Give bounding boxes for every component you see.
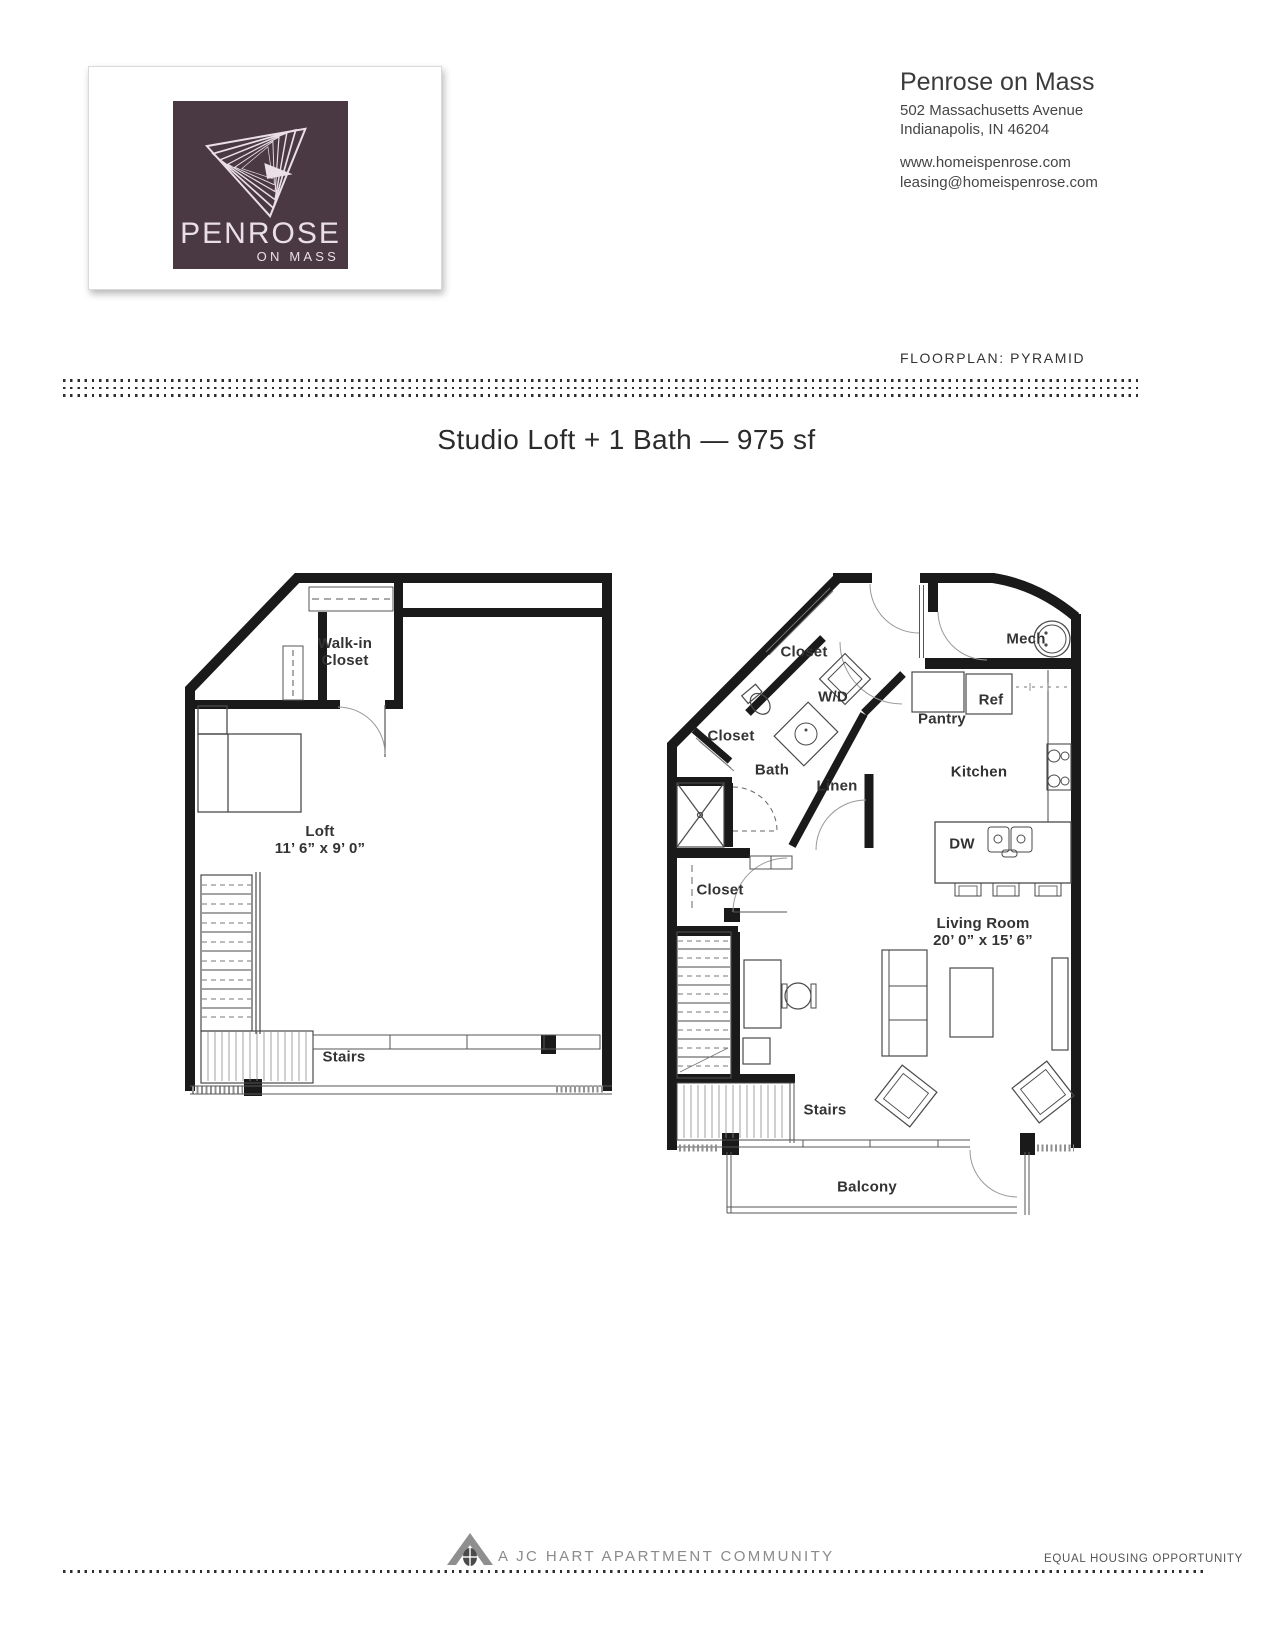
label-mech: Mech [1006,631,1045,648]
dotted-divider-top [63,379,1140,402]
logo-brand-text: PENROSE [173,217,348,251]
label-closet-lower: Closet [696,882,743,899]
loft-level-plan [150,530,620,1110]
label-ref: Ref [979,692,1004,709]
label-bath: Bath [755,762,789,779]
jchart-house-icon [444,1527,496,1569]
label-closet-entry: Closet [780,644,827,661]
website-link[interactable]: www.homeispenrose.com [900,153,1098,173]
penrose-logo: PENROSE ON MASS [173,101,348,269]
community-text: A JC HART APARTMENT COMMUNITY [498,1548,835,1565]
address-line2: Indianapolis, IN 46204 [900,120,1083,139]
label-stairs-main: Stairs [804,1102,847,1119]
label-balcony: Balcony [837,1179,897,1196]
logo-card: PENROSE ON MASS [88,66,442,290]
page-title: Studio Loft + 1 Bath — 975 sf [0,424,1253,456]
property-name: Penrose on Mass [900,68,1095,97]
label-walk-in-closet: Walk-in Closet [318,635,372,669]
property-contact: www.homeispenrose.com leasing@homeispenr… [900,153,1098,193]
property-address: 502 Massachusetts Avenue Indianapolis, I… [900,101,1083,139]
label-living-room: Living Room 20’ 0” x 15’ 6” [933,915,1033,949]
dotted-divider-bottom [63,1570,1205,1578]
equal-housing-text: EQUAL HOUSING OPPORTUNITY [1044,1553,1243,1565]
label-linen: Linen [817,778,858,795]
label-washer-dryer: W/D [818,689,848,706]
address-line1: 502 Massachusetts Avenue [900,101,1083,120]
label-pantry: Pantry [918,711,966,728]
logo-tagline-text: ON MASS [257,249,339,264]
label-closet-mid: Closet [707,728,754,745]
label-stairs-loft: Stairs [323,1049,366,1066]
label-dishwasher: DW [949,836,974,853]
label-kitchen: Kitchen [951,764,1007,781]
floorplan-name: FLOORPLAN: PYRAMID [900,350,1085,366]
email-link[interactable]: leasing@homeispenrose.com [900,173,1098,193]
label-loft: Loft 11’ 6” x 9’ 0” [275,823,365,857]
